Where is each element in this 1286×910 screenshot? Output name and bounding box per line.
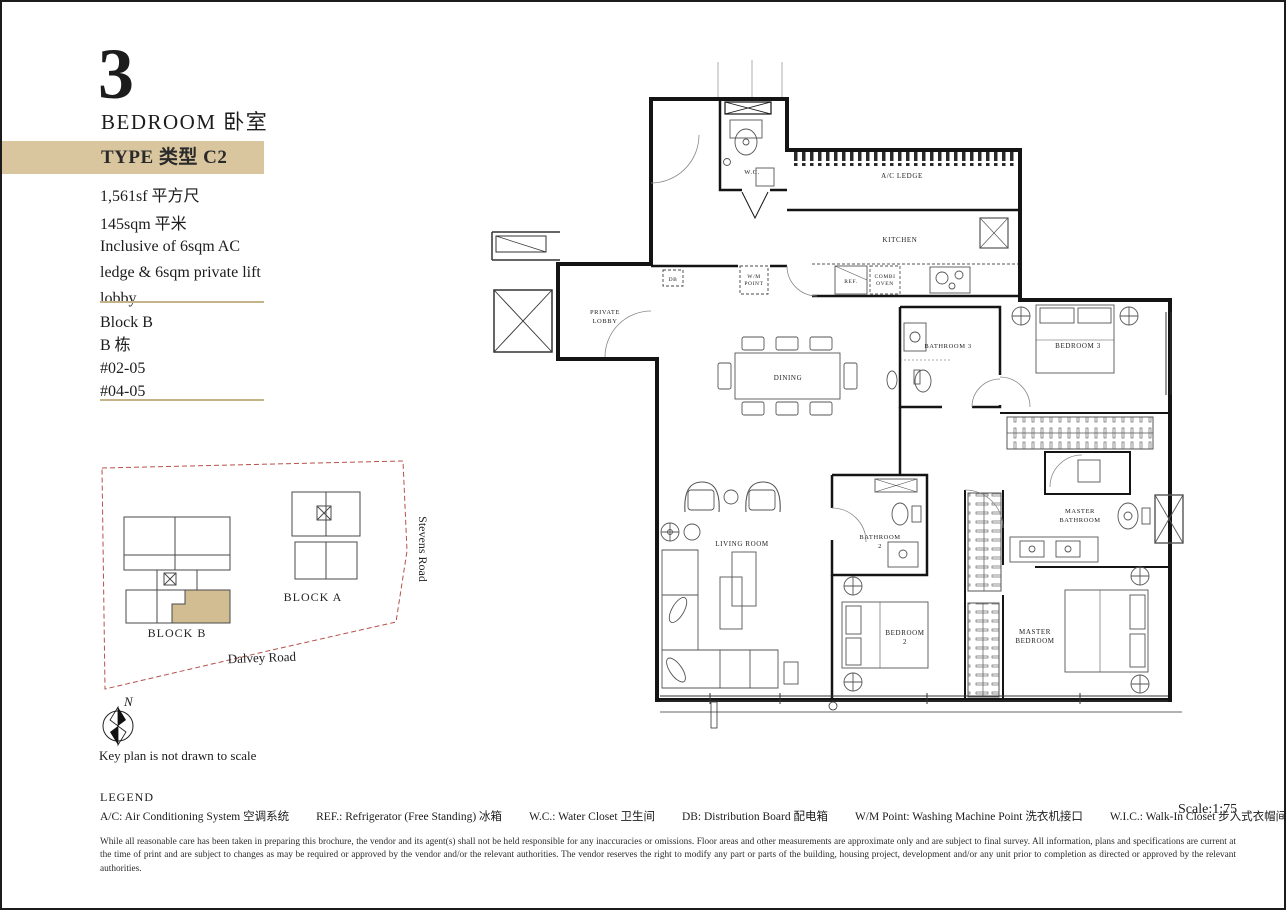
block-b-label: BLOCK B: [148, 626, 207, 640]
db-label: DB: [669, 277, 678, 283]
bedroom3-label: BEDROOM 3: [1055, 342, 1101, 350]
master-bedroom-label: MASTER: [1019, 628, 1051, 636]
private-lobby-label: PRIVATE: [590, 309, 620, 316]
ceiling-light-icon: [1120, 307, 1138, 325]
ac-ledge: [787, 152, 1020, 210]
legend-item: REF.: Refrigerator (Free Standing) 冰箱: [316, 811, 502, 823]
bathroom2-fixtures: [875, 479, 921, 567]
block-a-label: BLOCK A: [284, 590, 343, 604]
ceiling-light-icon: [844, 577, 862, 595]
key-plan: BLOCK B BLOCK A Stevens Road Dalvey Road…: [97, 454, 442, 754]
block-name: Block B: [100, 311, 153, 334]
highlighted-unit: [172, 590, 230, 623]
svg-text:2: 2: [878, 543, 882, 550]
area-sf: 1,561sf 平方尺: [100, 183, 200, 211]
exterior-walls: [558, 99, 1170, 700]
bathroom3-fixtures: [900, 323, 950, 392]
stevens-road-label: Stevens Road: [416, 516, 430, 582]
bathroom2-label: BATHROOM: [859, 534, 900, 541]
bedroom2-label: BEDROOM: [885, 629, 924, 637]
ceiling-light-icon: [1012, 307, 1030, 325]
sink-icon: [980, 218, 1008, 248]
bedroom3-furniture: [1012, 305, 1138, 373]
key-plan-block-b: [124, 517, 230, 623]
block-info: Block B B 栋 #02-05 #04-05: [100, 311, 153, 403]
master-bedroom-furniture: [1065, 567, 1149, 693]
svg-text:POINT: POINT: [744, 281, 763, 287]
bedroom-count: 3: [98, 38, 134, 110]
cooktop-icon: [930, 267, 970, 293]
north-label: N: [123, 694, 134, 709]
door-arcs: [605, 135, 1082, 542]
interior-walls: [651, 99, 1170, 700]
dining-table: [718, 337, 897, 415]
kitchen-counter: [812, 218, 1018, 294]
armchair-icon: [685, 482, 719, 512]
ceiling-light-icon: [1131, 675, 1149, 693]
legend-item: DB: Distribution Board 配电箱: [682, 811, 828, 823]
key-plan-block-a: [292, 492, 360, 579]
north-compass-icon: N: [103, 694, 134, 745]
legend-item: W/M Point: Washing Machine Point 洗衣机接口: [855, 811, 1083, 823]
master-bathroom-fixtures: [1010, 460, 1183, 562]
svg-text:BEDROOM: BEDROOM: [1015, 637, 1054, 645]
legend-row: A/C: Air Conditioning System 空调系统REF.: R…: [100, 808, 1160, 824]
armchair-icon: [746, 482, 780, 512]
dalvey-road-label: Dalvey Road: [227, 649, 296, 666]
brochure-page: 3 BEDROOM 卧室 TYPE 类型 C2 1,561sf 平方尺 145s…: [0, 0, 1286, 910]
svg-text:2: 2: [903, 638, 907, 646]
wc-label: W.C.: [744, 169, 760, 176]
living-furniture: [661, 482, 798, 688]
unit-type-banner: TYPE 类型 C2: [2, 141, 264, 174]
svg-text:LOBBY: LOBBY: [592, 318, 617, 325]
combi-oven-label: COMBI: [874, 274, 895, 280]
keyplan-caption: Key plan is not drawn to scale: [99, 748, 256, 764]
legend-item: A/C: Air Conditioning System 空调系统: [100, 811, 289, 823]
kitchen-label: KITCHEN: [883, 236, 918, 244]
bedroom-label: BEDROOM 卧室: [101, 106, 268, 136]
divider: [100, 301, 264, 303]
living-room-label: LIVING ROOM: [715, 540, 769, 548]
floor-lamp-icon: [661, 523, 679, 541]
dining-label: DINING: [774, 374, 802, 382]
wm-point-box: [740, 266, 768, 294]
ceiling-light-icon: [844, 673, 862, 691]
disclaimer-text: While all reasonable care has been taken…: [100, 836, 1236, 876]
legend-item: W.C.: Water Closet 卫生间: [529, 811, 655, 823]
legend-title: LEGEND: [100, 790, 154, 805]
wc-fixtures: [724, 120, 775, 186]
lift-lobby: [492, 232, 560, 352]
divider: [100, 399, 264, 401]
master-bathroom-label: MASTER: [1065, 508, 1095, 515]
wm-point-label: W/M: [747, 274, 760, 280]
floor-plan: W.C. A/C LEDGE KITCHEN REF. COMBI OVEN W…: [480, 50, 1195, 750]
ref-label: REF.: [844, 279, 857, 285]
reference-lines: [718, 60, 782, 97]
svg-text:OVEN: OVEN: [876, 281, 894, 287]
unit-area: 1,561sf 平方尺 145sqm 平米: [100, 183, 200, 239]
ac-ledge-label: A/C LEDGE: [881, 172, 923, 180]
scale-label: Scale:1:75: [1178, 802, 1237, 818]
svg-text:BATHROOM: BATHROOM: [1059, 517, 1100, 524]
bathroom3-label: BATHROOM 3: [924, 343, 971, 350]
block-name-cn: B 栋: [100, 334, 153, 357]
ceiling-light-icon: [1131, 567, 1149, 585]
unit-number: #02-05: [100, 357, 153, 380]
